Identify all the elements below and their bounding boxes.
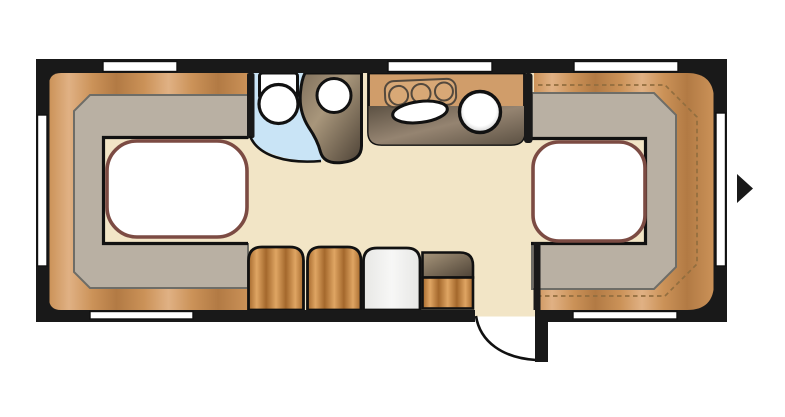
caravan-floorplan bbox=[0, 0, 785, 417]
caravan-floorplan-page bbox=[0, 0, 785, 417]
entry-door-post bbox=[535, 310, 548, 362]
window-top-1 bbox=[103, 62, 177, 72]
kitchen-group bbox=[369, 73, 533, 145]
bathroom-wall bbox=[247, 73, 255, 138]
left-bed bbox=[107, 141, 247, 237]
right-bed bbox=[533, 142, 645, 241]
side-cabinet-front bbox=[423, 278, 474, 309]
entry-threshold bbox=[475, 310, 535, 317]
entry-door-swing bbox=[476, 316, 536, 360]
window-bottom-2 bbox=[573, 312, 677, 320]
entry-door-group bbox=[475, 310, 536, 360]
window-right bbox=[716, 113, 726, 266]
sofa-cushion bbox=[249, 247, 304, 310]
kitchen-round-basin bbox=[460, 92, 501, 133]
sofa-cushion bbox=[308, 247, 362, 310]
right-bed-left-edge-wall bbox=[534, 242, 541, 310]
window-left bbox=[38, 115, 48, 266]
toilet-bowl bbox=[259, 85, 298, 124]
side-cabinet-top bbox=[423, 253, 474, 278]
window-top-3 bbox=[574, 62, 678, 72]
bathroom-group bbox=[247, 73, 362, 163]
left-bed-group bbox=[49, 73, 248, 310]
stove-burner bbox=[389, 86, 409, 106]
window-bottom-1 bbox=[90, 312, 193, 320]
right-bed-group bbox=[531, 73, 714, 310]
window-top-2 bbox=[388, 62, 492, 72]
direction-arrow-icon bbox=[737, 174, 753, 203]
sofa-cushion-light bbox=[364, 248, 421, 310]
bathroom-sink bbox=[317, 79, 351, 113]
stove-burner bbox=[435, 82, 454, 101]
seating-group bbox=[249, 247, 474, 310]
kitchen-divider-wall bbox=[524, 73, 533, 143]
